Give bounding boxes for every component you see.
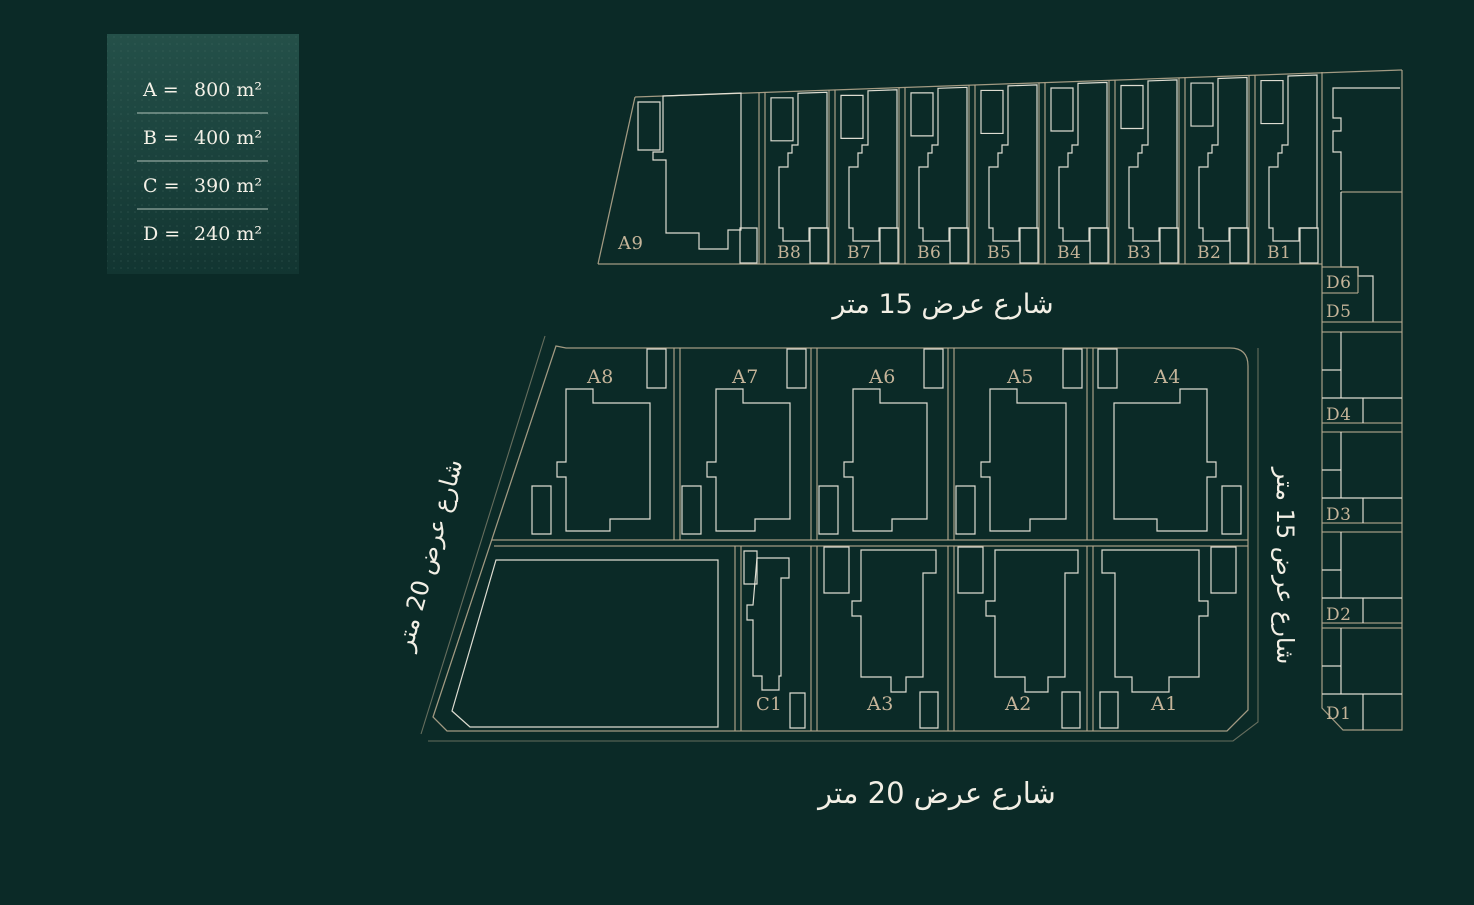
plot-label-a7[interactable]: A7	[731, 366, 759, 388]
street-label-right: شارع عرض 15 متر	[1271, 467, 1299, 665]
street-label-bottom: شارع عرض 20 متر	[816, 776, 1056, 810]
building-outline	[924, 349, 943, 388]
legend-key-a: A =	[142, 79, 179, 101]
plot-boundary	[428, 348, 1258, 741]
legend-key-d: D =	[143, 223, 180, 245]
building-outline	[981, 389, 1066, 531]
building-outline	[880, 228, 898, 263]
building-outline	[1300, 228, 1318, 263]
plot-linework	[421, 70, 1402, 741]
building-outline	[638, 102, 660, 150]
building-outline	[1090, 228, 1108, 263]
building-outline	[682, 486, 701, 534]
plot-label-d1[interactable]: D1	[1326, 704, 1351, 724]
building-outline	[1222, 486, 1241, 534]
legend-box: A = 800 m² B = 400 m² C = 390 m² D = 240…	[107, 34, 299, 274]
building-outline	[1199, 77, 1247, 241]
plot-label-a3[interactable]: A3	[866, 693, 894, 715]
building-outline	[844, 389, 927, 531]
building-outline	[740, 228, 757, 263]
plot-label-a6[interactable]: A6	[868, 366, 896, 388]
building-outline	[1100, 692, 1118, 728]
site-plan-page: A = 800 m² B = 400 m² C = 390 m² D = 240…	[0, 0, 1474, 905]
building-outline	[1261, 81, 1283, 124]
building-outline	[819, 486, 838, 534]
building-outline	[1063, 349, 1082, 388]
plot-label-b2[interactable]: B2	[1197, 243, 1221, 263]
building-outline	[653, 93, 741, 249]
building-outline	[452, 560, 718, 727]
building-outline	[1333, 88, 1400, 190]
site-plan-canvas: A = 800 m² B = 400 m² C = 390 m² D = 240…	[0, 0, 1474, 905]
plot-label-b5[interactable]: B5	[987, 243, 1011, 263]
plot-label-b7[interactable]: B7	[847, 243, 871, 263]
plot-label-d3[interactable]: D3	[1326, 505, 1351, 525]
building-outline	[824, 547, 849, 593]
building-outline	[852, 550, 936, 692]
plot-label-b4[interactable]: B4	[1057, 243, 1081, 263]
building-outline	[787, 349, 806, 388]
plot-boundary	[433, 346, 1248, 731]
street-label-left: شارع عرض 20 متر	[390, 456, 468, 654]
plot-label-c1[interactable]: C1	[756, 694, 782, 715]
building-outline	[747, 558, 789, 690]
plot-label-a9[interactable]: A9	[617, 233, 643, 254]
building-outline	[911, 93, 933, 136]
plot-label-d6[interactable]: D6	[1326, 273, 1351, 293]
building-outline	[1098, 349, 1117, 388]
plot-label-d4[interactable]: D4	[1326, 405, 1351, 425]
building-outline	[1051, 88, 1073, 131]
building-outline	[1121, 86, 1143, 129]
legend-key-c: C =	[143, 175, 180, 197]
building-outline	[647, 349, 666, 388]
building-outline	[810, 228, 828, 263]
plot-label-a8[interactable]: A8	[586, 366, 614, 388]
building-outline	[950, 228, 968, 263]
building-outline	[986, 550, 1078, 692]
plot-label-b8[interactable]: B8	[777, 243, 801, 263]
building-outline	[981, 90, 1003, 133]
building-outline	[1114, 389, 1216, 531]
building-outline	[1191, 83, 1213, 126]
plot-boundary	[635, 70, 1402, 97]
building-outline	[557, 389, 650, 531]
building-outline	[1269, 75, 1317, 241]
building-outline	[1062, 692, 1080, 728]
plot-label-b1[interactable]: B1	[1267, 243, 1291, 263]
building-outline	[920, 692, 938, 728]
legend-value-a: 800 m²	[194, 79, 262, 101]
building-outline	[1230, 228, 1248, 263]
plot-label-a1[interactable]: A1	[1150, 693, 1178, 715]
building-outline	[1059, 82, 1107, 241]
street-label-top: شارع عرض 15 متر	[830, 289, 1053, 320]
building-outline	[958, 547, 983, 593]
building-outline	[919, 87, 967, 241]
legend-value-b: 400 m²	[194, 127, 262, 149]
building-outline	[532, 486, 551, 534]
legend-value-c: 390 m²	[194, 175, 262, 197]
plot-label-b3[interactable]: B3	[1127, 243, 1151, 263]
plot-label-d2[interactable]: D2	[1326, 605, 1351, 625]
building-outline	[989, 85, 1037, 241]
building-outline	[849, 90, 897, 241]
plot-label-a4[interactable]: A4	[1153, 366, 1181, 388]
legend-value-d: 240 m²	[194, 223, 262, 245]
building-outline	[1211, 547, 1236, 593]
building-outline	[779, 92, 827, 241]
building-outline	[1102, 550, 1208, 692]
plot-label-a5[interactable]: A5	[1006, 366, 1034, 388]
building-outline	[956, 486, 975, 534]
building-outline	[707, 389, 790, 531]
building-outline	[771, 98, 793, 141]
plot-boundary	[1322, 70, 1402, 730]
building-outline	[1020, 228, 1038, 263]
plot-label-b6[interactable]: B6	[917, 243, 941, 263]
plot-label-d5[interactable]: D5	[1326, 302, 1351, 322]
building-outline	[841, 95, 863, 138]
legend-key-b: B =	[143, 127, 179, 149]
building-outline	[790, 693, 805, 728]
building-outline	[1129, 80, 1177, 241]
building-outline	[1160, 228, 1178, 263]
plot-label-a2[interactable]: A2	[1004, 693, 1032, 715]
